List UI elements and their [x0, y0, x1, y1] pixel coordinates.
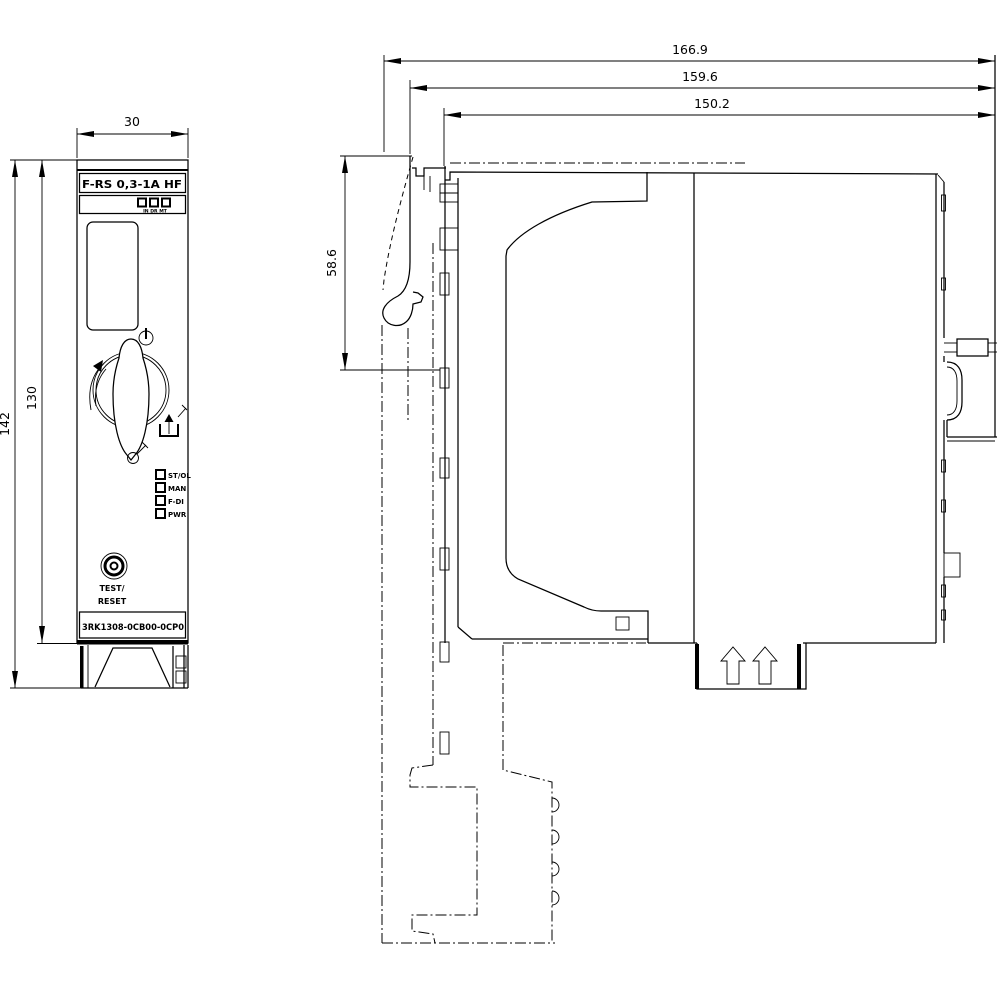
button-label-top: TEST/ — [99, 584, 124, 593]
side-depth-dimensions: 166.9 159.6 150.2 — [384, 42, 995, 437]
release-arrow-left — [721, 647, 745, 684]
side-module-body — [440, 163, 997, 754]
product-label: F-RS 0,3-1A HF — [82, 178, 182, 191]
mid-depth-value: 159.6 — [682, 69, 718, 84]
front-height-dimensions: 142 130 — [0, 160, 81, 688]
led-man — [156, 483, 165, 492]
terminal-bump-3 — [552, 862, 559, 876]
front-cover-outline — [506, 172, 648, 643]
base-unit-phantom — [382, 243, 559, 943]
removal-icon — [160, 405, 187, 436]
top-height-value: 58.6 — [324, 249, 339, 277]
bottom-bar — [77, 640, 188, 645]
button-label-bottom: RESET — [98, 597, 127, 606]
side-view: 166.9 159.6 150.2 58.6 — [324, 42, 997, 943]
cover-latch — [616, 617, 629, 630]
led-label-stol: ST/OL — [168, 472, 191, 480]
led-label-pwr: PWR — [168, 511, 187, 519]
base-section — [80, 645, 188, 688]
terminal-bump-4 — [552, 891, 559, 905]
front-width-dimension: 30 — [77, 114, 188, 158]
terminal-bump-2 — [552, 830, 559, 844]
led-pwr — [156, 509, 165, 518]
terminal-block — [695, 643, 806, 689]
led-stol — [156, 470, 165, 479]
switch-square-2 — [150, 199, 158, 207]
bus-connector — [944, 339, 997, 441]
overall-depth-value: 166.9 — [672, 42, 708, 57]
release-arrow-right — [753, 647, 777, 684]
label-window — [87, 222, 138, 330]
hook-swing-path — [383, 157, 413, 290]
front-view: F-RS 0,3-1A HF IN DR MT — [0, 114, 191, 688]
led-block: ST/OL MAN F-DI PWR — [156, 470, 191, 519]
switch-positions-label: IN DR MT — [143, 209, 168, 215]
led-fdi — [156, 496, 165, 505]
test-reset-button[interactable] — [101, 553, 127, 579]
dimension-drawing-page: F-RS 0,3-1A HF IN DR MT — [0, 0, 1000, 1000]
led-label-man: MAN — [168, 485, 186, 493]
rail-tab — [944, 553, 960, 577]
din-rail-hook — [383, 156, 446, 325]
body-depth-value: 150.2 — [694, 96, 730, 111]
front-width-value: 30 — [124, 114, 140, 129]
front-total-height-value: 142 — [0, 412, 12, 436]
rotary-switch[interactable] — [93, 339, 169, 460]
dimension-drawing: F-RS 0,3-1A HF IN DR MT — [0, 0, 1000, 1000]
switch-square-1 — [138, 199, 146, 207]
front-body-height-value: 130 — [24, 386, 39, 410]
side-height-dimension: 58.6 — [324, 156, 440, 370]
power-icon — [139, 328, 153, 345]
switch-square-3 — [162, 199, 170, 207]
led-label-fdi: F-DI — [168, 498, 184, 506]
terminal-bump-1 — [552, 798, 559, 812]
part-number: 3RK1308-0CB00-0CP0 — [82, 623, 184, 633]
